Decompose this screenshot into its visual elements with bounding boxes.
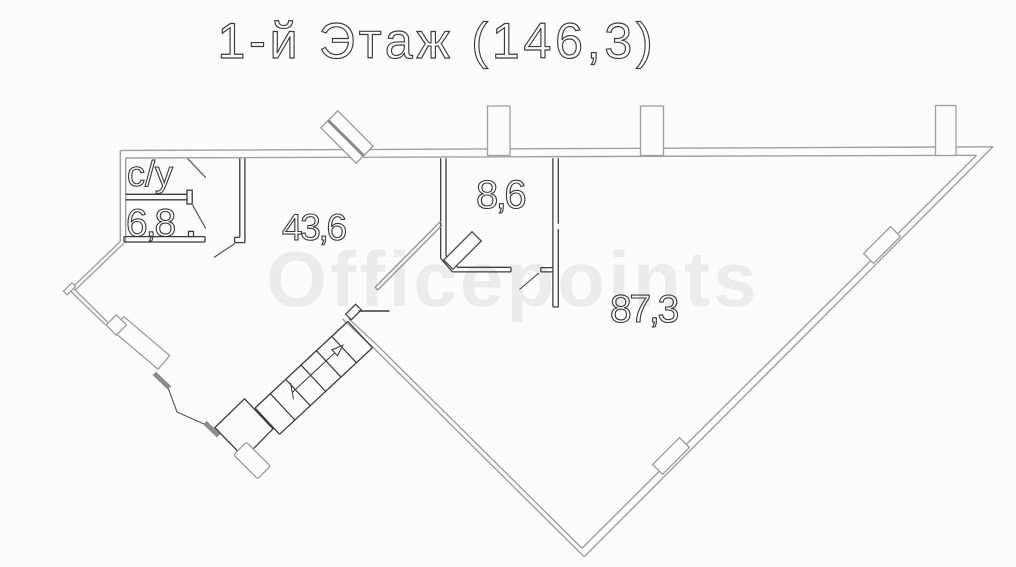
svg-text:43,6: 43,6 (282, 207, 346, 248)
svg-text:Officepoints: Officepoints (266, 235, 759, 323)
svg-text:87,3: 87,3 (610, 288, 678, 331)
svg-text:8,6: 8,6 (476, 173, 525, 217)
svg-text:6,8: 6,8 (126, 202, 175, 245)
svg-text:с/у: с/у (127, 153, 173, 194)
svg-text:1-й Этаж (146,3): 1-й Этаж (146,3) (218, 13, 657, 69)
